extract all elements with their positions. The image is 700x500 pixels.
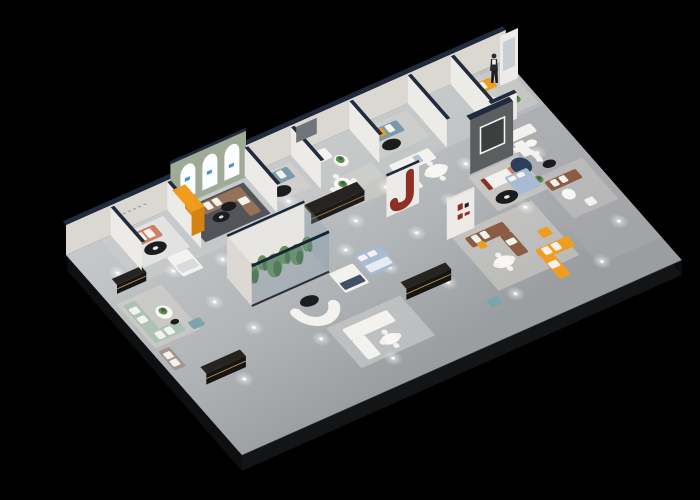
floor-plane (66, 60, 682, 455)
wall-sign-text (143, 204, 146, 205)
wall-sign-text (138, 206, 141, 207)
showroom-3d-scene (0, 0, 700, 500)
poster-image (503, 37, 515, 71)
figure-shirt (492, 60, 496, 65)
figure-head (492, 54, 497, 59)
wall-sign-text (128, 211, 131, 212)
wall-sign-text (123, 213, 126, 214)
promo-poster-panel (500, 28, 518, 86)
wall-sign-text (133, 208, 136, 209)
showroom-render-stage (0, 0, 700, 500)
